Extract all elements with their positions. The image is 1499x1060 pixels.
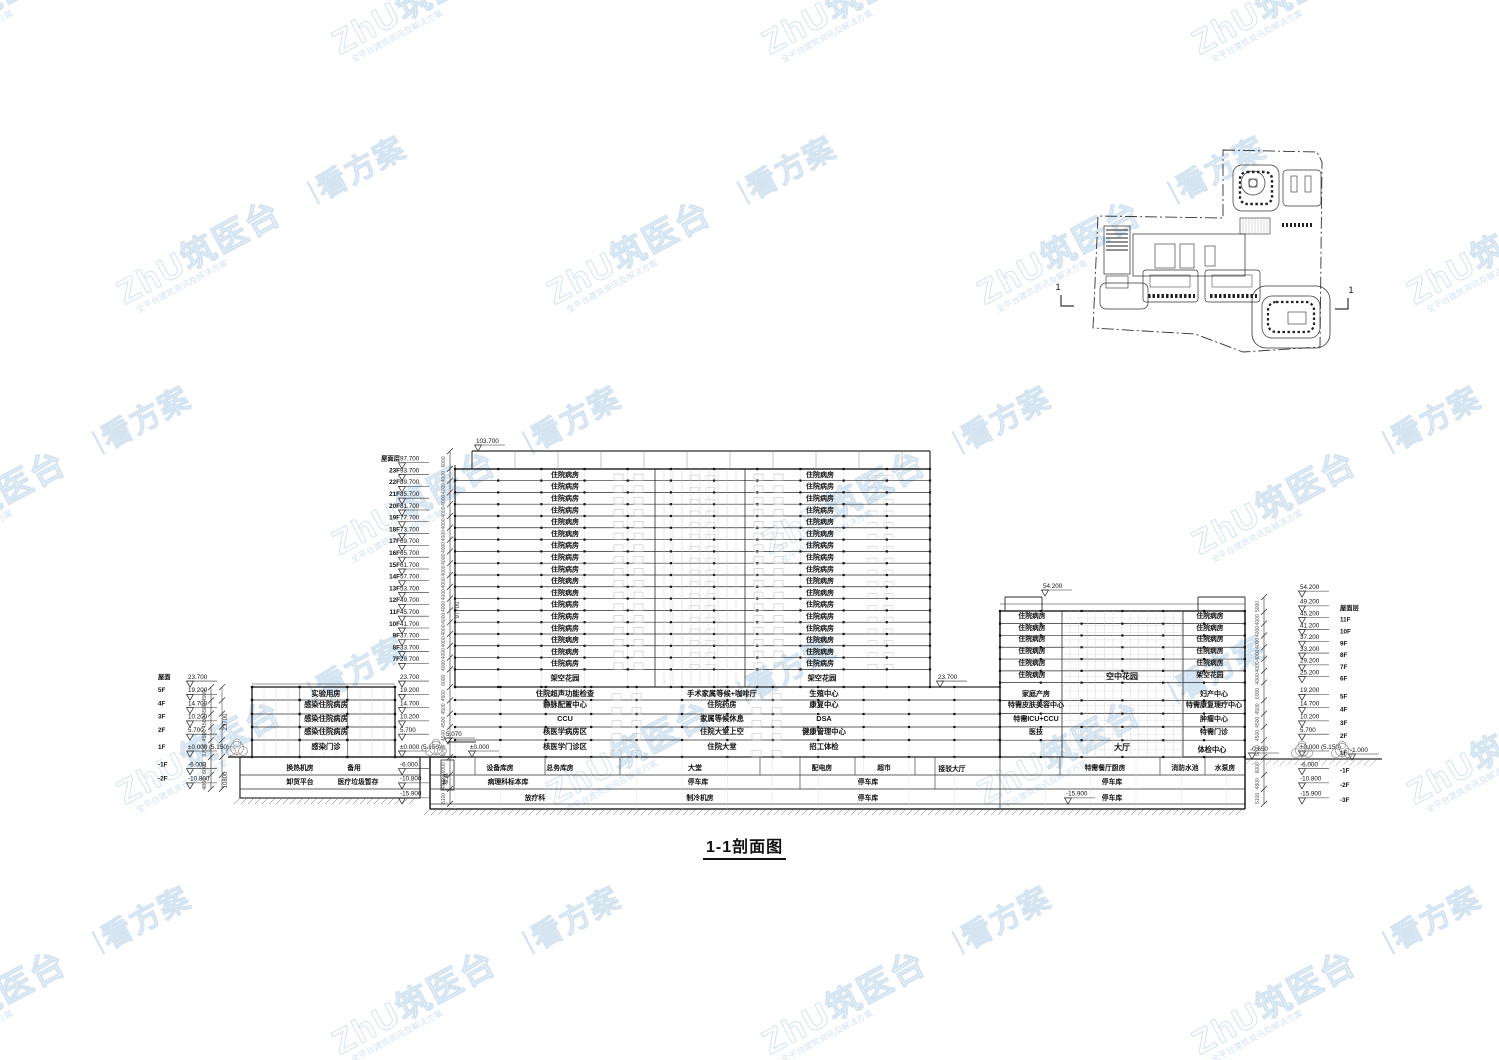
level-value: 45.200 [1300,610,1320,617]
room-label: 实验用房 [311,689,340,698]
floor-label: 10F [1340,628,1351,635]
ward-label: 住院病房 [551,470,579,479]
room-label: 停车库 [688,777,709,786]
room-label: 特需门诊 [1200,727,1229,736]
watermark-slogan: 看方案 [311,130,412,205]
dim-text: 5700 [202,744,208,756]
dim-text: 4000 [441,613,447,624]
floor-label: -2F [1340,782,1350,789]
level-value: ±0.000 (5.150) [188,744,229,751]
dim-text: 4000 [441,589,447,600]
dim-text: 5000 [1255,601,1261,612]
dim-text: 4000 [441,506,447,517]
watermark-brand: ZhU筑医台 [326,944,503,1060]
level-value: -15.900 [1066,791,1088,798]
room-label: 病理科标本库 [488,777,529,786]
level-value: 57.700 [400,574,420,581]
room-label: 停车库 [858,793,879,802]
room-label: 肿瘤中心 [1199,714,1228,723]
ward-label: 住院病房 [551,493,579,502]
ward-label: 住院病房 [551,541,579,550]
dim-text: 4000 [1255,649,1261,660]
level-value: 49.700 [400,597,420,604]
dim-text: 4500 [202,716,208,728]
ward-label: 住院病房 [806,588,834,597]
dim-text: 4500 [202,703,208,715]
ward-label: 住院病房 [551,517,579,526]
ward-label: 住院病房 [806,576,834,585]
level-value: ±0.000 (5.150) [400,744,441,751]
room-label: 卸货平台 [286,777,313,786]
room-label: 大厅 [1114,742,1130,752]
ward-label: 住院病房 [806,482,834,491]
room-label: 特需餐厅厨房 [1085,763,1126,772]
ward-label: 住院病房 [1196,634,1223,643]
level-value: 33.700 [400,644,420,651]
level-value: 37.700 [400,633,420,640]
ward-label: 住院病房 [551,611,579,620]
ward-label: 住院病房 [551,505,579,514]
drawing-canvas: ZhU筑医台全平台建筑资讯及解决方案丨看方案ZhU筑医台全平台建筑资讯及解决方案… [0,0,1499,1060]
room-label: 住院大堂 [707,742,736,751]
level-value: -15.900 [1300,791,1322,798]
room-label: 健康管理中心 [802,727,846,736]
level-value: 73.700 [400,526,420,533]
room-label: 停车库 [858,777,879,786]
dim-text: 4000 [441,554,447,565]
room-label: 家属等候休息 [700,714,744,723]
room-label: 超市 [876,763,891,772]
watermark-subtext: 全平台建筑资讯及解决方案 [0,1008,15,1060]
ward-label: 住院病房 [806,529,834,538]
level-value: 23.700 [188,674,208,681]
floor-label: 11F [1340,617,1351,624]
level-value: 5.700 [400,727,416,734]
room-label: CCU [557,714,573,723]
room-label: 招工体检 [809,742,839,751]
floor-label: 4F [158,700,166,707]
right-level-column: 54.20049.200屋面层45.20011F41.20010F37.2009… [1245,584,1382,807]
dim-text: 10800 [223,771,229,788]
level-value: -6.000 [1300,762,1318,769]
level-value: 29.700 [400,656,420,663]
room-label: 停车库 [1102,793,1123,802]
ward-label: 住院病房 [1196,623,1223,632]
level-value: 10.200 [1300,714,1320,721]
watermark-slogan: 看方案 [526,880,627,955]
ward-label: 住院病房 [551,635,579,644]
dim-text: 4500 [441,703,447,714]
floor-label: 3F [158,714,166,721]
level-value: 93.700 [400,467,420,474]
floor-label: 屋面 [158,672,171,681]
dim-text: 4500 [1255,716,1261,727]
watermark-brand: ZhU筑医台 [111,194,288,312]
dim-text: 6000 [441,674,447,685]
ward-label: 住院病房 [551,576,579,585]
ward-label: 住院病房 [806,505,834,514]
ward-label: 住院病房 [806,470,834,479]
floor-label: 8F [393,644,401,651]
floor-label: 9F [1340,640,1348,647]
room-label: 大堂 [688,763,702,772]
dim-text: 23700 [223,713,229,730]
level-value: 14.700 [400,700,420,707]
dim-text: 4500 [1255,703,1261,714]
dim-text: 4000 [441,601,447,612]
level-value: 97.700 [400,456,420,463]
room-label: 设备库房 [486,763,513,772]
floor-label: 19F [389,515,400,522]
level-value: 54.200 [1043,583,1063,590]
ward-label: 住院病房 [806,635,834,644]
ward-label: 住院病房 [551,647,579,656]
level-value: 77.700 [400,515,420,522]
room-label: 感染住院病房 [304,700,348,709]
floor-label: 3F [1340,720,1348,727]
dim-text: 4500 [1255,730,1261,741]
ward-label: 住院病房 [806,517,834,526]
room-label: 配电房 [812,763,833,772]
room-label: 备用 [346,763,361,772]
ward-label: 住院病房 [806,611,834,620]
ward-label: 住院病房 [806,552,834,561]
ward-label: 住院病房 [1018,658,1045,667]
level-value: 103.700 [476,438,499,445]
watermark-brand: ZhU筑医台 [971,194,1148,312]
level-value: ±0.000 [470,744,490,751]
floor-label: 1F [158,744,166,751]
watermark-brand: ZhU筑医台 [111,694,288,812]
dim-text: 6000 [441,762,447,773]
dim-text: 4000 [441,483,447,494]
room-label: 住院大堂上空 [700,727,744,736]
dim-text: 4000 [441,577,447,588]
ward-label: 住院病房 [806,623,834,632]
floor-label: 15F [389,562,400,569]
level-value: 10.200 [400,714,420,721]
room-label: 感染住院病房 [304,714,348,723]
ward-label: 住院病房 [806,564,834,573]
dim-text: 4000 [441,636,447,647]
room-label: 家庭产房 [1022,689,1050,698]
dim-text: 4000 [441,648,447,659]
level-value: 53.700 [400,585,420,592]
watermark-brand: ZhU筑医台 [1186,444,1363,562]
ward-label: 住院病房 [551,529,579,538]
ward-label: 住院病房 [551,623,579,632]
floor-label: 屋面层 [381,454,401,463]
room-label: 架空花园 [807,673,837,682]
floor-label: 5F [1340,693,1348,700]
watermark-slogan: 看方案 [96,380,197,455]
watermark-slogan: 看方案 [1386,380,1487,455]
dim-text: 4000 [441,624,447,635]
dim-text: 4000 [1255,673,1261,684]
floor-label: -1F [158,762,168,769]
room-label: 住院超声功能检查 [536,689,595,698]
watermark-slogan: 看方案 [956,380,1057,455]
ward-label: 住院病房 [1018,646,1045,655]
ward-label: 住院病房 [806,493,834,502]
section-mark: 1 [1348,285,1353,295]
room-label: 静脉配置中心 [543,700,587,709]
ward-label: 住院病房 [1196,611,1223,620]
room-label: 水泵房 [1214,763,1236,772]
floor-label: 12F [389,597,400,604]
ward-label: 住院病房 [551,552,579,561]
ward-label: 住院病房 [806,659,834,668]
level-value: 23.700 [938,674,958,681]
dim-text: 4000 [441,542,447,553]
level-value: 41.700 [400,621,420,628]
floor-label: 16F [389,550,400,557]
floor-label: 7F [1340,664,1348,671]
watermark-slogan: 看方案 [741,130,842,205]
dim-text: 4500 [202,729,208,741]
room-label: 放疗科 [524,793,546,802]
floor-label: 17F [389,538,400,545]
room-label: 住院药房 [707,700,736,709]
ward-label: 住院病房 [551,600,579,609]
level-value: 29.200 [1300,658,1320,665]
floor-label: 8F [1340,652,1348,659]
room-label: 架空花园 [550,673,580,682]
dim-text: 4000 [1255,661,1261,672]
room-label: 特需皮肤美容中心 [1008,700,1064,709]
dim-text: 4000 [1255,638,1261,649]
room-label: 停车库 [1102,777,1123,786]
room-label: 体检中心 [1198,745,1228,754]
ward-label: 住院病房 [551,588,579,597]
floor-label: 10F [389,621,400,628]
watermark-brand: ZhU筑医台 [756,444,933,562]
floor-label: 4F [1340,707,1348,714]
level-value: 89.700 [400,479,420,486]
level-value: 61.700 [400,562,420,569]
watermark-slogan: 看方案 [96,880,197,955]
level-value: 45.700 [400,609,420,616]
dim-text: 4500 [202,690,208,702]
floor-label: -3F [1340,797,1350,804]
ward-label: 住院病房 [1018,634,1045,643]
floor-label: 11F [389,609,400,616]
floor-label: 14F [389,574,400,581]
ward-label: 住院病房 [1196,646,1223,655]
watermark-layer: ZhU筑医台全平台建筑资讯及解决方案丨看方案ZhU筑医台全平台建筑资讯及解决方案… [0,0,1499,1060]
floor-label: 23F [389,467,400,474]
room-label: 核医学门诊区 [543,742,587,751]
watermark-brand: ZhU筑医台 [541,194,718,312]
level-value: 14.700 [1300,700,1320,707]
watermark-slogan: 看方案 [956,880,1057,955]
room-label: 医技 [1029,727,1044,736]
dim-text: 4800 [1255,778,1261,789]
room-label: 妇产中心 [1199,689,1228,698]
floor-label: 22F [389,479,400,486]
floor-label: 2F [1340,733,1348,740]
room-label: 接驳大厅 [938,764,965,773]
floor-label: 6F [1340,676,1348,683]
level-value: 19.200 [400,687,420,694]
ward-label: 住院病房 [551,564,579,573]
floor-label: 18F [389,526,400,533]
drawing-title: 1-1剖面图 [703,833,786,860]
level-value: 69.700 [400,538,420,545]
dim-text: 4000 [441,471,447,482]
room-label: 消防水池 [1171,763,1198,772]
section-mark: 1 [1055,282,1060,292]
level-value: 41.200 [1300,622,1320,629]
ward-label: 住院病房 [1196,658,1223,667]
dim-text: 4000 [441,660,447,671]
level-value: 5.070 [446,731,462,738]
ward-label: 住院病房 [551,659,579,668]
ward-label: 住院病房 [1018,623,1045,632]
dim-text: 5700 [1255,745,1261,756]
level-value: 19.200 [1300,687,1320,694]
level-value: -10.800 [400,776,422,783]
room-label: 架空花园 [1195,670,1223,679]
dim-text: 6000 [1255,688,1261,699]
floor-label: 21F [389,491,400,498]
watermark-brand: ZhU筑医台 [1186,944,1363,1060]
room-label: 特需ICU+CCU [1013,714,1058,723]
watermark-brand: ZhU筑医台 [756,944,933,1060]
dim-text: 4000 [1255,626,1261,637]
room-label: DSA [816,714,832,723]
level-value: 25.200 [1300,669,1320,676]
level-value: 49.200 [1300,599,1320,606]
level-value: 5.700 [1300,727,1316,734]
dim-text: 4000 [441,518,447,529]
watermark-brand: ZhU筑医台 [0,444,73,562]
ward-label: 住院病房 [1018,611,1045,620]
room-label: 康复中心 [809,700,839,709]
floor-label: 9F [393,633,401,640]
dim-text: 4000 [441,530,447,541]
level-value: 85.700 [400,491,420,498]
level-value: 81.700 [400,503,420,510]
watermark-brand: ZhU筑医台 [0,944,73,1060]
dim-text: 5100 [441,793,447,804]
floor-label: 13F [389,585,400,592]
level-value: 65.700 [400,550,420,557]
floor-label: 2F [158,727,166,734]
level-value: -6.000 [400,762,418,769]
floor-label: 5F [158,687,166,694]
level-value: 54.200 [1300,584,1320,591]
room-label: 换热机房 [286,763,313,772]
watermark-slogan: 看方案 [1386,880,1487,955]
room-label: 生殖中心 [809,689,839,698]
dim-text: 4000 [1255,614,1261,625]
ward-label: 住院病房 [806,600,834,609]
floor-label: 20F [389,503,400,510]
room-label: 医疗垃圾暂存 [338,777,379,786]
dim-text: 4000 [441,495,447,506]
dim-text: 6000 [202,762,208,774]
ward-label: 住院病房 [551,482,579,491]
room-label: 空中花园 [1106,671,1138,681]
room-label: 核医学病房区 [543,727,587,736]
dim-text: 4500 [441,690,447,701]
ward-label: 住院病房 [1018,670,1045,679]
level-value: -10.800 [1300,776,1322,783]
level-value: 37.200 [1300,634,1320,641]
room-label: 手术家属等候+咖啡厅 [687,689,758,698]
dim-text: 4800 [202,778,208,790]
room-label: 制冷机房 [686,793,713,802]
ward-label: 住院病房 [806,647,834,656]
watermark-subtext: 全平台建筑资讯及解决方案 [0,8,15,65]
floor-label: 7F [393,656,401,663]
floor-label: 屋面层 [1340,603,1360,612]
watermark-slogan: 看方案 [526,380,627,455]
watermark-brand: ZhU筑医台 [0,0,73,62]
section-drawing: ZhU筑医台全平台建筑资讯及解决方案丨看方案ZhU筑医台全平台建筑资讯及解决方案… [0,0,1499,1060]
dim-text: 4500 [441,716,447,727]
dim-text: 6000 [441,456,447,467]
floor-label: -2F [158,776,168,783]
dim-text: 5100 [1255,793,1261,804]
room-label: 感染住院病房 [304,727,348,736]
floor-label: -1F [1340,768,1350,775]
level-value: 23.700 [400,674,420,681]
level-value: 33.200 [1300,646,1320,653]
level-value: -15.900 [400,791,422,798]
dim-text: 4000 [441,565,447,576]
room-label: 总务库房 [546,763,573,772]
room-label: 感染门诊 [311,742,341,751]
watermark-subtext: 全平台建筑资讯及解决方案 [0,508,15,565]
ward-label: 住院病房 [806,541,834,550]
room-label: 特需康复理疗中心 [1186,700,1242,709]
